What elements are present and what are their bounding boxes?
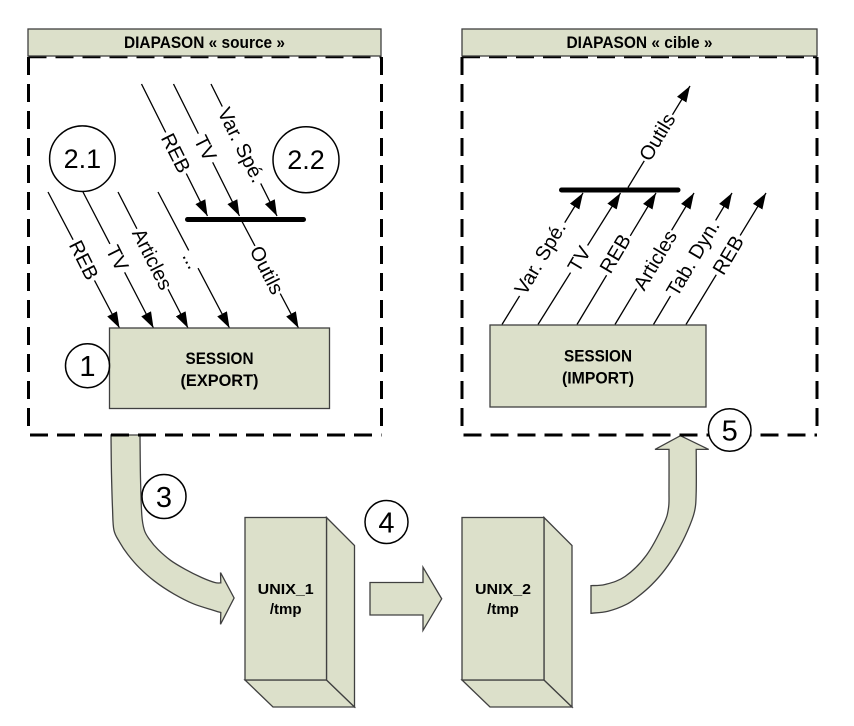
svg-text:5: 5 bbox=[722, 416, 738, 448]
svg-text:...: ... bbox=[178, 248, 205, 273]
svg-text:Var. Spé.: Var. Spé. bbox=[213, 104, 269, 186]
svg-text:1: 1 bbox=[79, 351, 95, 383]
svg-text:/tmp: /tmp bbox=[487, 601, 519, 618]
svg-text:DIAPASON « cible »: DIAPASON « cible » bbox=[567, 33, 713, 52]
svg-text:4: 4 bbox=[378, 508, 394, 540]
svg-text:UNIX_2: UNIX_2 bbox=[475, 581, 531, 598]
svg-text:UNIX_1: UNIX_1 bbox=[258, 581, 314, 598]
svg-text:Articles: Articles bbox=[127, 225, 176, 293]
svg-text:2.2: 2.2 bbox=[287, 145, 325, 175]
svg-text:SESSION: SESSION bbox=[564, 347, 632, 366]
svg-text:DIAPASON « source »: DIAPASON « source » bbox=[124, 33, 285, 52]
svg-text:SESSION: SESSION bbox=[186, 349, 254, 368]
svg-text:Outils: Outils bbox=[635, 110, 680, 165]
svg-text:/tmp: /tmp bbox=[270, 601, 302, 618]
svg-text:(EXPORT): (EXPORT) bbox=[181, 371, 259, 390]
svg-text:Outils: Outils bbox=[245, 243, 288, 299]
svg-text:(IMPORT): (IMPORT) bbox=[562, 369, 634, 388]
svg-text:2.1: 2.1 bbox=[64, 144, 102, 174]
svg-text:REB: REB bbox=[64, 237, 102, 284]
svg-text:3: 3 bbox=[156, 482, 172, 514]
svg-text:REB: REB bbox=[156, 130, 194, 177]
